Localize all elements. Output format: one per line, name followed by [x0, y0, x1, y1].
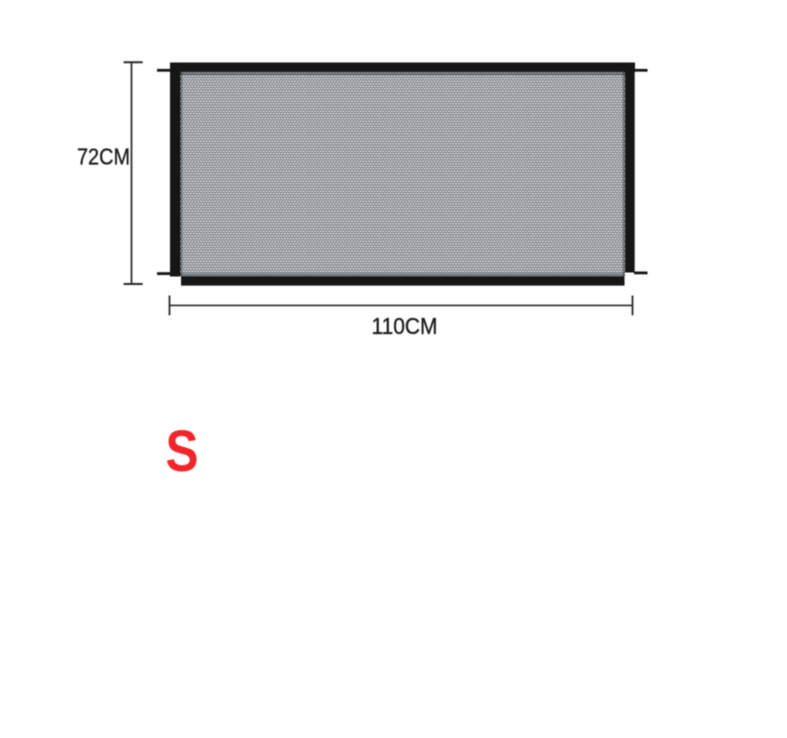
svg-text:110CM: 110CM — [372, 313, 438, 339]
svg-text:72CM: 72CM — [77, 144, 130, 170]
svg-text:S: S — [166, 419, 199, 484]
